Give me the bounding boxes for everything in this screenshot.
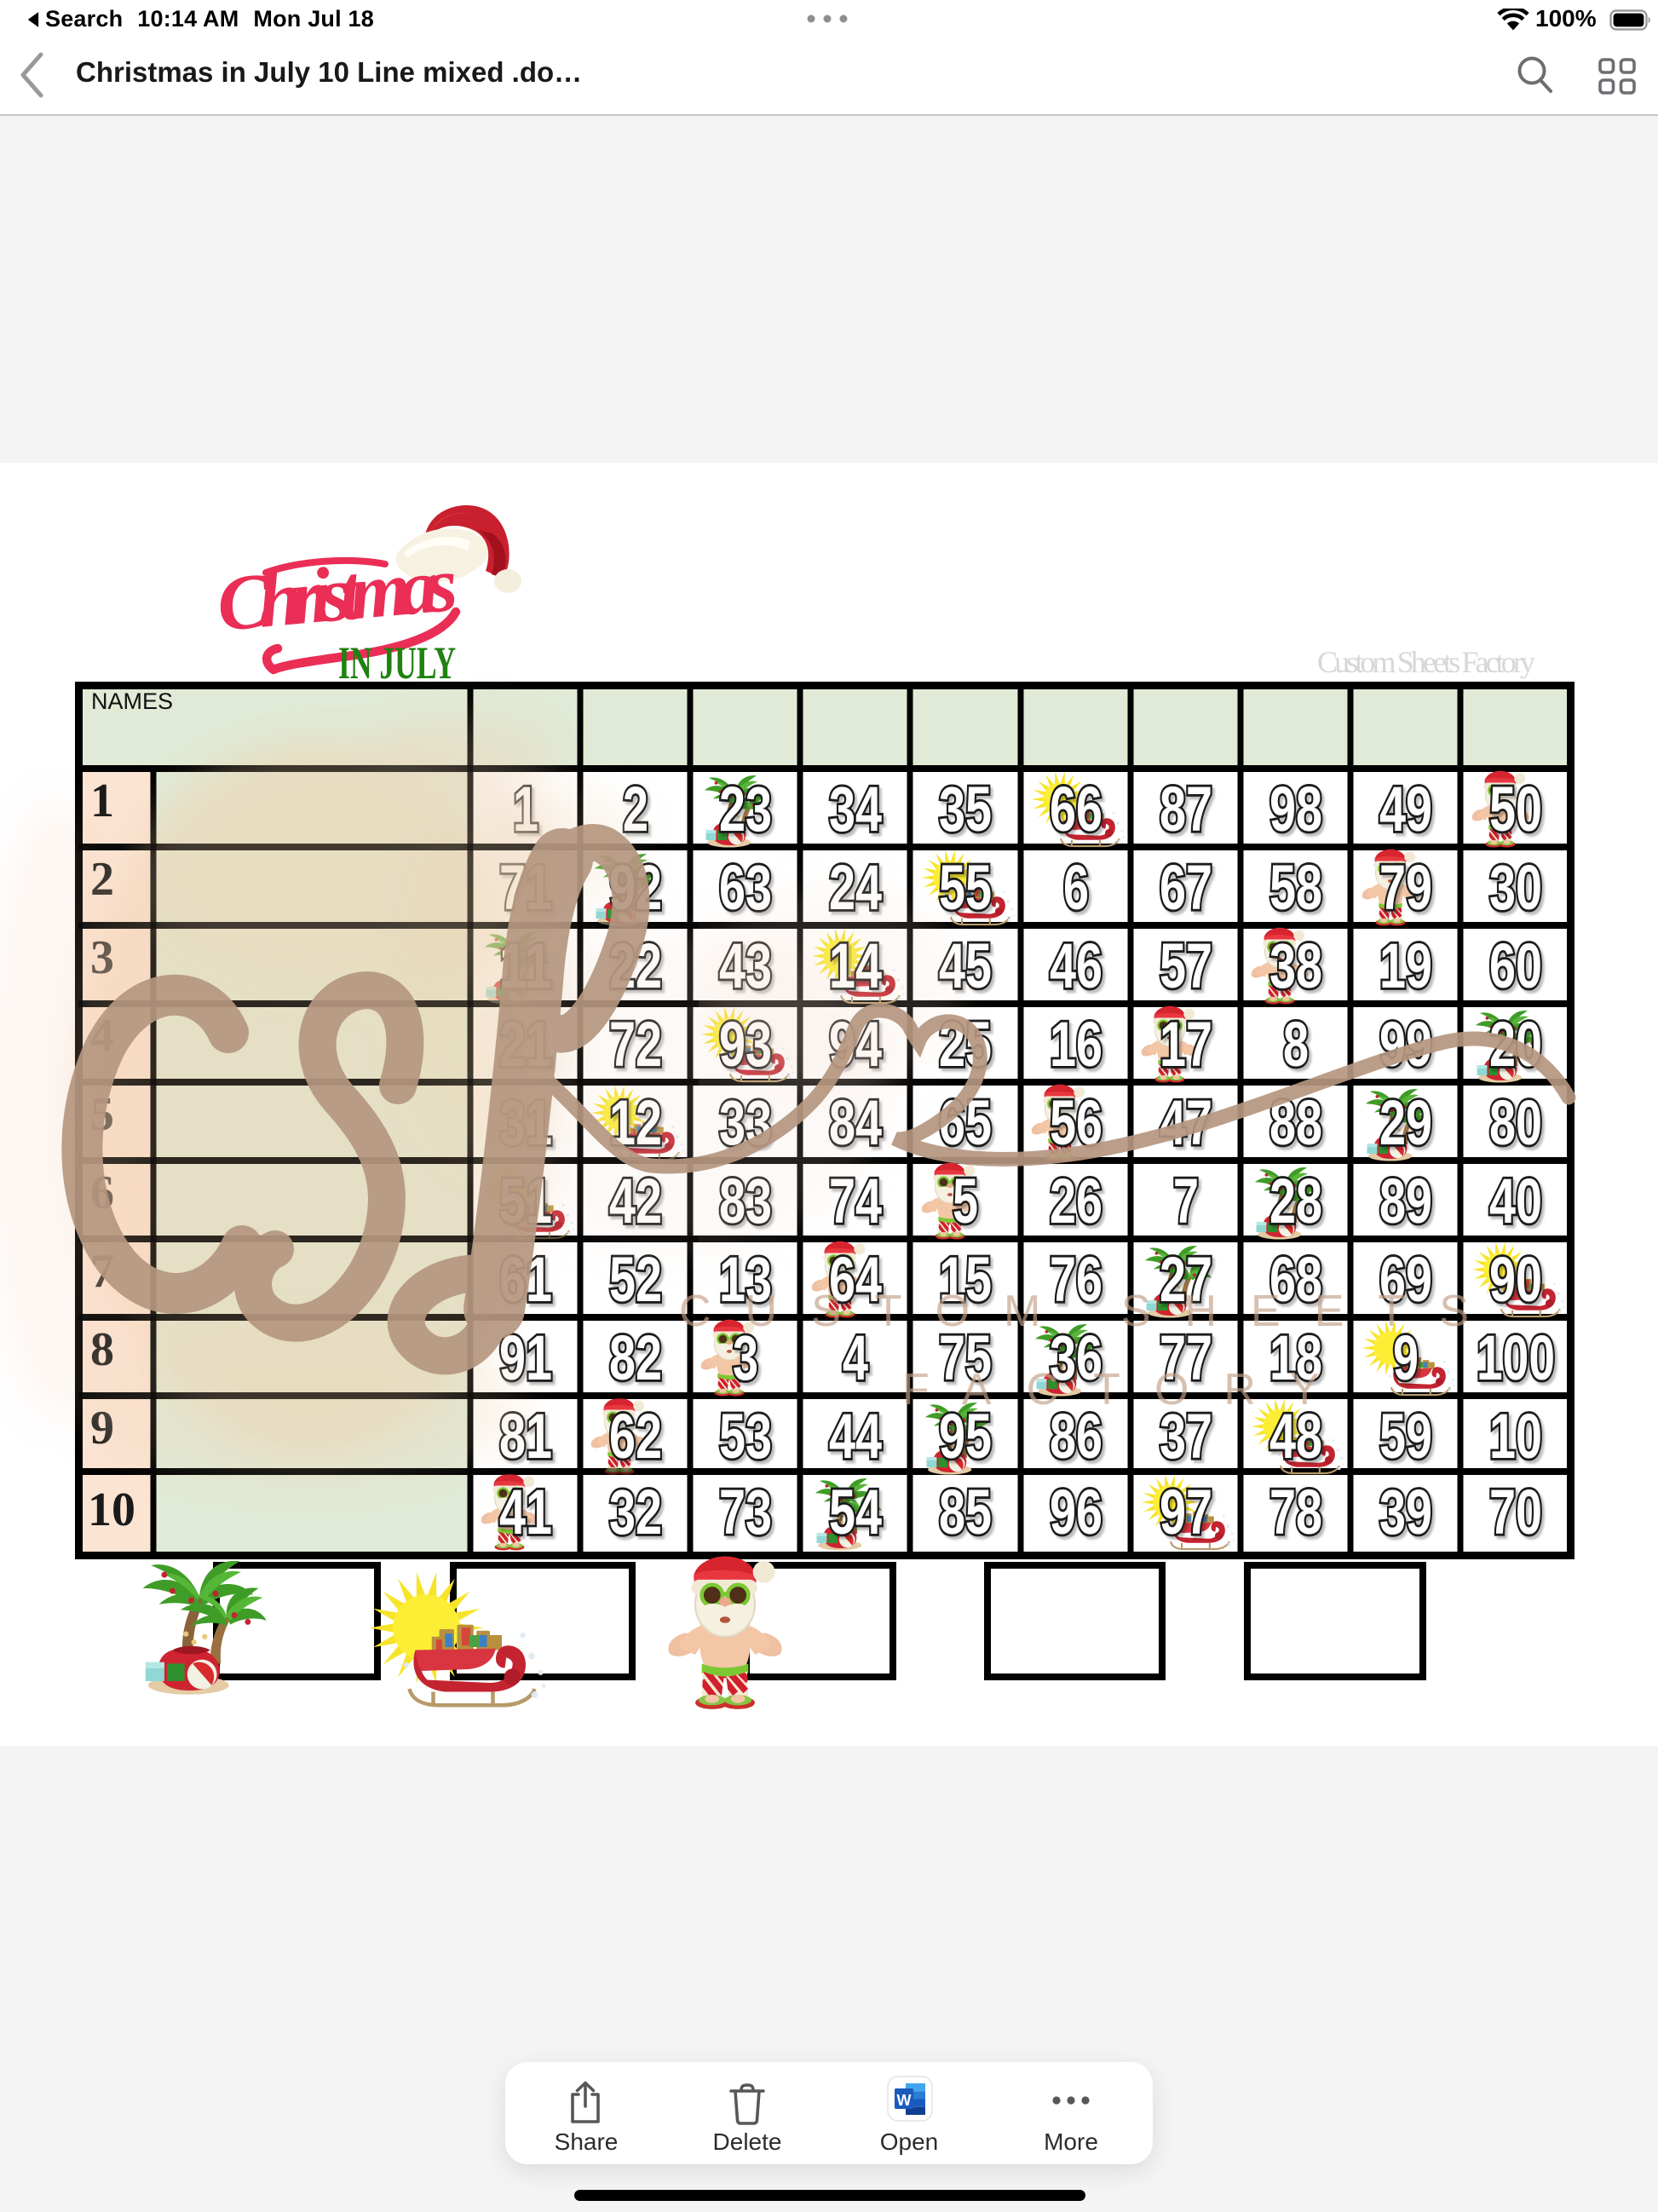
svg-text:6: 6 (1063, 852, 1089, 923)
svg-text:60: 60 (1489, 930, 1542, 1001)
svg-text:17: 17 (1160, 1009, 1212, 1080)
svg-text:49: 49 (1379, 774, 1432, 844)
svg-text:29: 29 (1379, 1087, 1432, 1158)
svg-text:W: W (897, 2092, 912, 2109)
svg-text:NAMES: NAMES (91, 688, 173, 714)
svg-text:73: 73 (719, 1477, 772, 1547)
svg-text:26: 26 (1050, 1166, 1102, 1236)
svg-text:32: 32 (609, 1477, 662, 1547)
svg-text:CUSTOM SHEETS: CUSTOM SHEETS (679, 1287, 1503, 1336)
svg-text:10: 10 (88, 1483, 135, 1536)
svg-text:59: 59 (1379, 1401, 1432, 1472)
svg-text:41: 41 (499, 1477, 552, 1547)
svg-text:57: 57 (1160, 930, 1212, 1001)
svg-text:52: 52 (609, 1244, 662, 1315)
svg-text:1: 1 (90, 775, 114, 827)
svg-text:35: 35 (939, 774, 992, 844)
svg-text:46: 46 (1050, 930, 1102, 1001)
svg-text:39: 39 (1379, 1477, 1432, 1547)
svg-text:67: 67 (1160, 852, 1212, 923)
svg-text:28: 28 (1269, 1166, 1322, 1236)
svg-text:87: 87 (1160, 774, 1212, 844)
svg-text:58: 58 (1269, 852, 1322, 923)
svg-text:40: 40 (1489, 1166, 1542, 1236)
svg-text:38: 38 (1269, 930, 1322, 1001)
svg-text:19: 19 (1379, 930, 1432, 1001)
svg-text:78: 78 (1269, 1477, 1322, 1547)
svg-text:30: 30 (1489, 852, 1542, 923)
svg-text:FACTORY: FACTORY (902, 1365, 1355, 1414)
svg-text:98: 98 (1269, 774, 1322, 844)
svg-text:97: 97 (1160, 1477, 1212, 1547)
svg-text:50: 50 (1489, 774, 1542, 844)
svg-text:96: 96 (1050, 1477, 1102, 1547)
svg-text:62: 62 (609, 1401, 662, 1472)
svg-text:55: 55 (939, 852, 992, 923)
svg-text:IN JULY: IN JULY (338, 637, 456, 688)
svg-text:79: 79 (1379, 852, 1432, 923)
svg-text:66: 66 (1050, 774, 1102, 844)
svg-text:80: 80 (1489, 1087, 1542, 1158)
svg-text:23: 23 (719, 774, 772, 844)
svg-text:7: 7 (1173, 1166, 1199, 1236)
svg-text:85: 85 (939, 1477, 992, 1547)
svg-text:10: 10 (1489, 1401, 1542, 1472)
svg-text:70: 70 (1489, 1477, 1542, 1547)
svg-text:44: 44 (829, 1401, 882, 1472)
svg-text:53: 53 (719, 1401, 772, 1472)
svg-text:16: 16 (1050, 1009, 1102, 1080)
svg-text:82: 82 (609, 1322, 662, 1393)
svg-text:5: 5 (953, 1166, 978, 1236)
svg-text:Custom Sheets Factory: Custom Sheets Factory (1317, 645, 1535, 679)
svg-text:54: 54 (829, 1477, 882, 1547)
svg-text:8: 8 (1283, 1009, 1309, 1080)
svg-text:89: 89 (1379, 1166, 1432, 1236)
svg-text:34: 34 (829, 774, 882, 844)
